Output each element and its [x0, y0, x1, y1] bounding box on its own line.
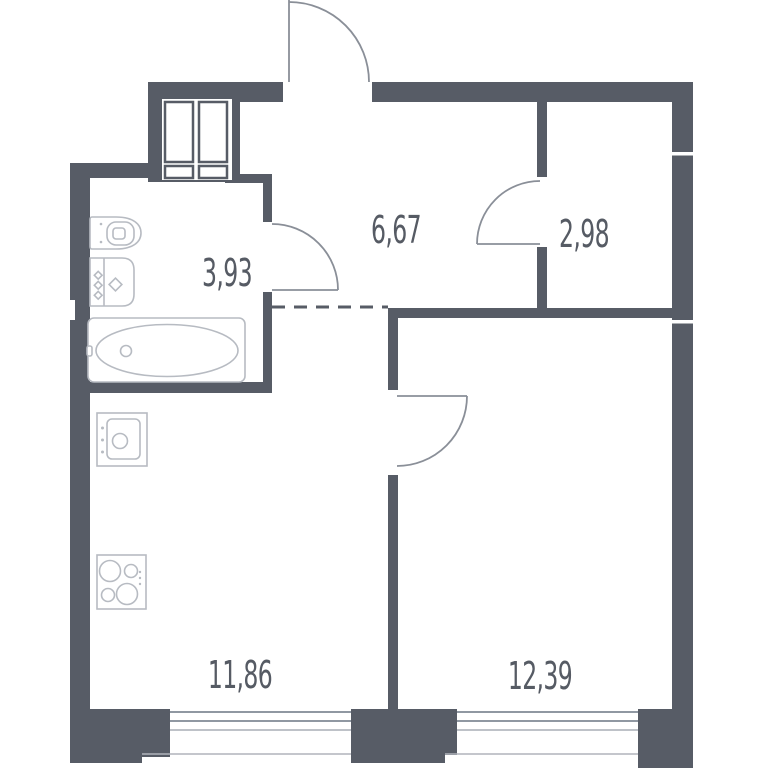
room-label-wardrobe: 2,98: [559, 213, 609, 256]
room-label-kitchen-living: 11,86: [208, 654, 272, 697]
wardrobe-wall-upper: [537, 102, 547, 177]
kitchen-sink: [97, 413, 147, 466]
right-outer-wall: [672, 82, 693, 768]
bedroom-door-arc: [397, 396, 467, 466]
bedroom-partition-lower: [388, 475, 398, 709]
room-label-bedroom: 12,39: [508, 655, 572, 698]
shaft-duct-2-foot: [199, 166, 227, 178]
washbasin: [90, 258, 134, 306]
room-label-hallway: 6,67: [371, 209, 421, 252]
left-outer-wall: [70, 163, 90, 763]
right-wall-joint-lower: [671, 320, 694, 324]
bottom-pier-left-step: [70, 757, 142, 763]
bathroom-connector-wall: [225, 174, 272, 183]
bottom-pier-right: [638, 709, 693, 768]
bottom-pier-left: [70, 709, 170, 757]
hallway-bedroom-wall: [388, 308, 672, 318]
bathroom-fixtures: [87, 217, 245, 382]
toilet: [90, 217, 141, 249]
top-wall-right-of-entrance: [372, 82, 693, 102]
floor-plan: 6,67 2,98 3,93 11,86 12,39: [0, 0, 766, 768]
bedroom-window: [445, 712, 638, 754]
floor-plan-svg: 6,67 2,98 3,93 11,86 12,39: [0, 0, 766, 768]
ventilation-shaft: [162, 99, 232, 180]
bottom-pier-center: [351, 709, 457, 755]
bathroom-bottom-wall: [70, 382, 272, 393]
shaft-duct-1-foot: [165, 166, 193, 178]
stove-4-burners: [97, 555, 146, 609]
bathtub: [87, 318, 245, 382]
kitchen-fixtures: [97, 413, 147, 609]
right-wall-joint-upper: [671, 152, 694, 156]
entrance-door-arc: [289, 2, 369, 82]
walls: [70, 82, 693, 768]
wardrobe-door: [477, 181, 540, 244]
shaft-duct-1: [165, 102, 193, 162]
wardrobe-door-arc: [477, 181, 540, 244]
left-wall-joint: [69, 300, 75, 320]
kitchen-living-room-window: [142, 712, 351, 754]
bathroom-right-wall-lower: [263, 292, 272, 393]
bedroom-door: [397, 396, 467, 466]
bathroom-door: [272, 224, 338, 290]
room-label-bathroom: 3,93: [202, 252, 252, 295]
bedroom-partition-upper: [388, 318, 398, 390]
bottom-pier-center-step: [351, 755, 445, 763]
wardrobe-wall-lower: [537, 247, 547, 308]
entrance-door: [289, 0, 369, 82]
room-labels: 6,67 2,98 3,93 11,86 12,39: [202, 209, 609, 698]
bathroom-door-arc: [272, 224, 338, 290]
shaft-duct-2: [199, 102, 227, 162]
